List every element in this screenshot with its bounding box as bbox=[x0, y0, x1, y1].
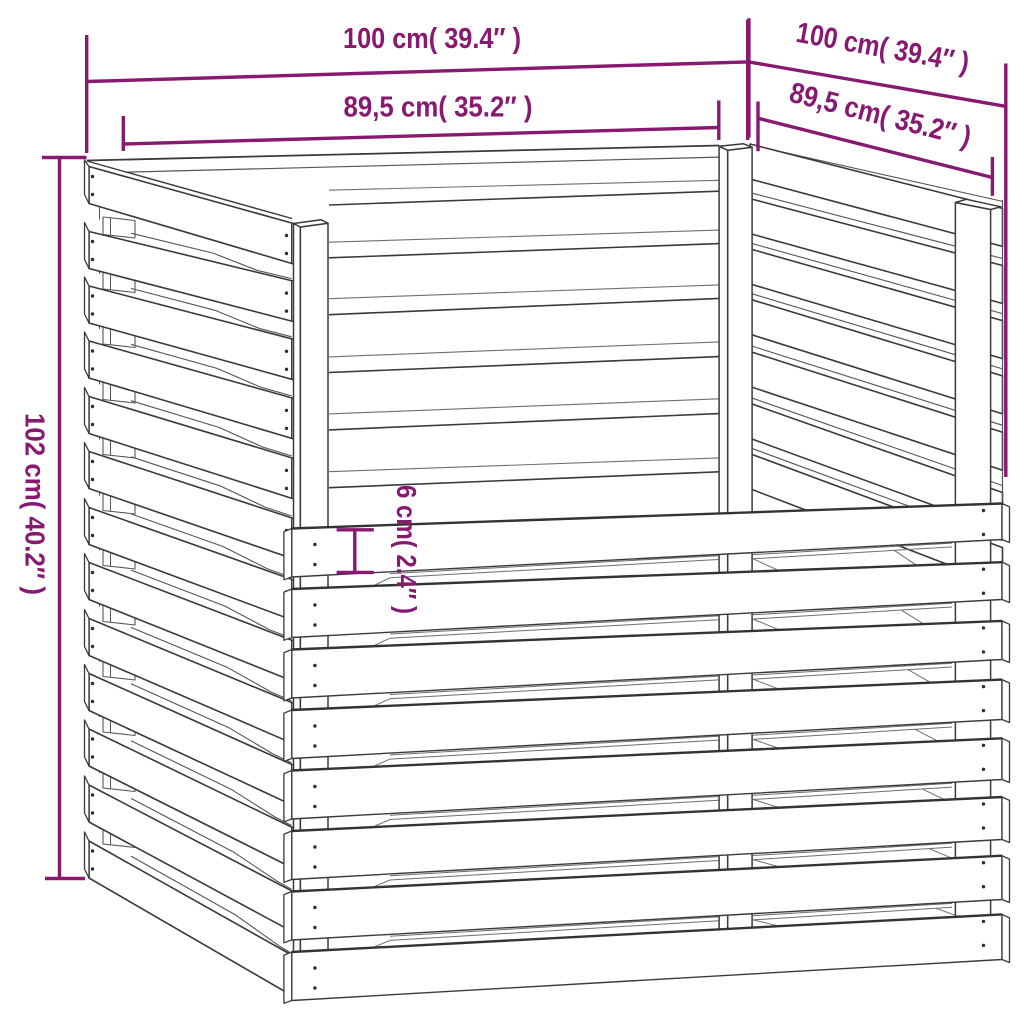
svg-text:6 cm( 2.4″ ): 6 cm( 2.4″ ) bbox=[391, 485, 422, 614]
svg-text:100 cm( 39.4″ ): 100 cm( 39.4″ ) bbox=[343, 23, 521, 55]
svg-text:102 cm( 40.2″ ): 102 cm( 40.2″ ) bbox=[20, 413, 51, 595]
svg-text:89,5 cm( 35.2″ ): 89,5 cm( 35.2″ ) bbox=[344, 92, 533, 124]
